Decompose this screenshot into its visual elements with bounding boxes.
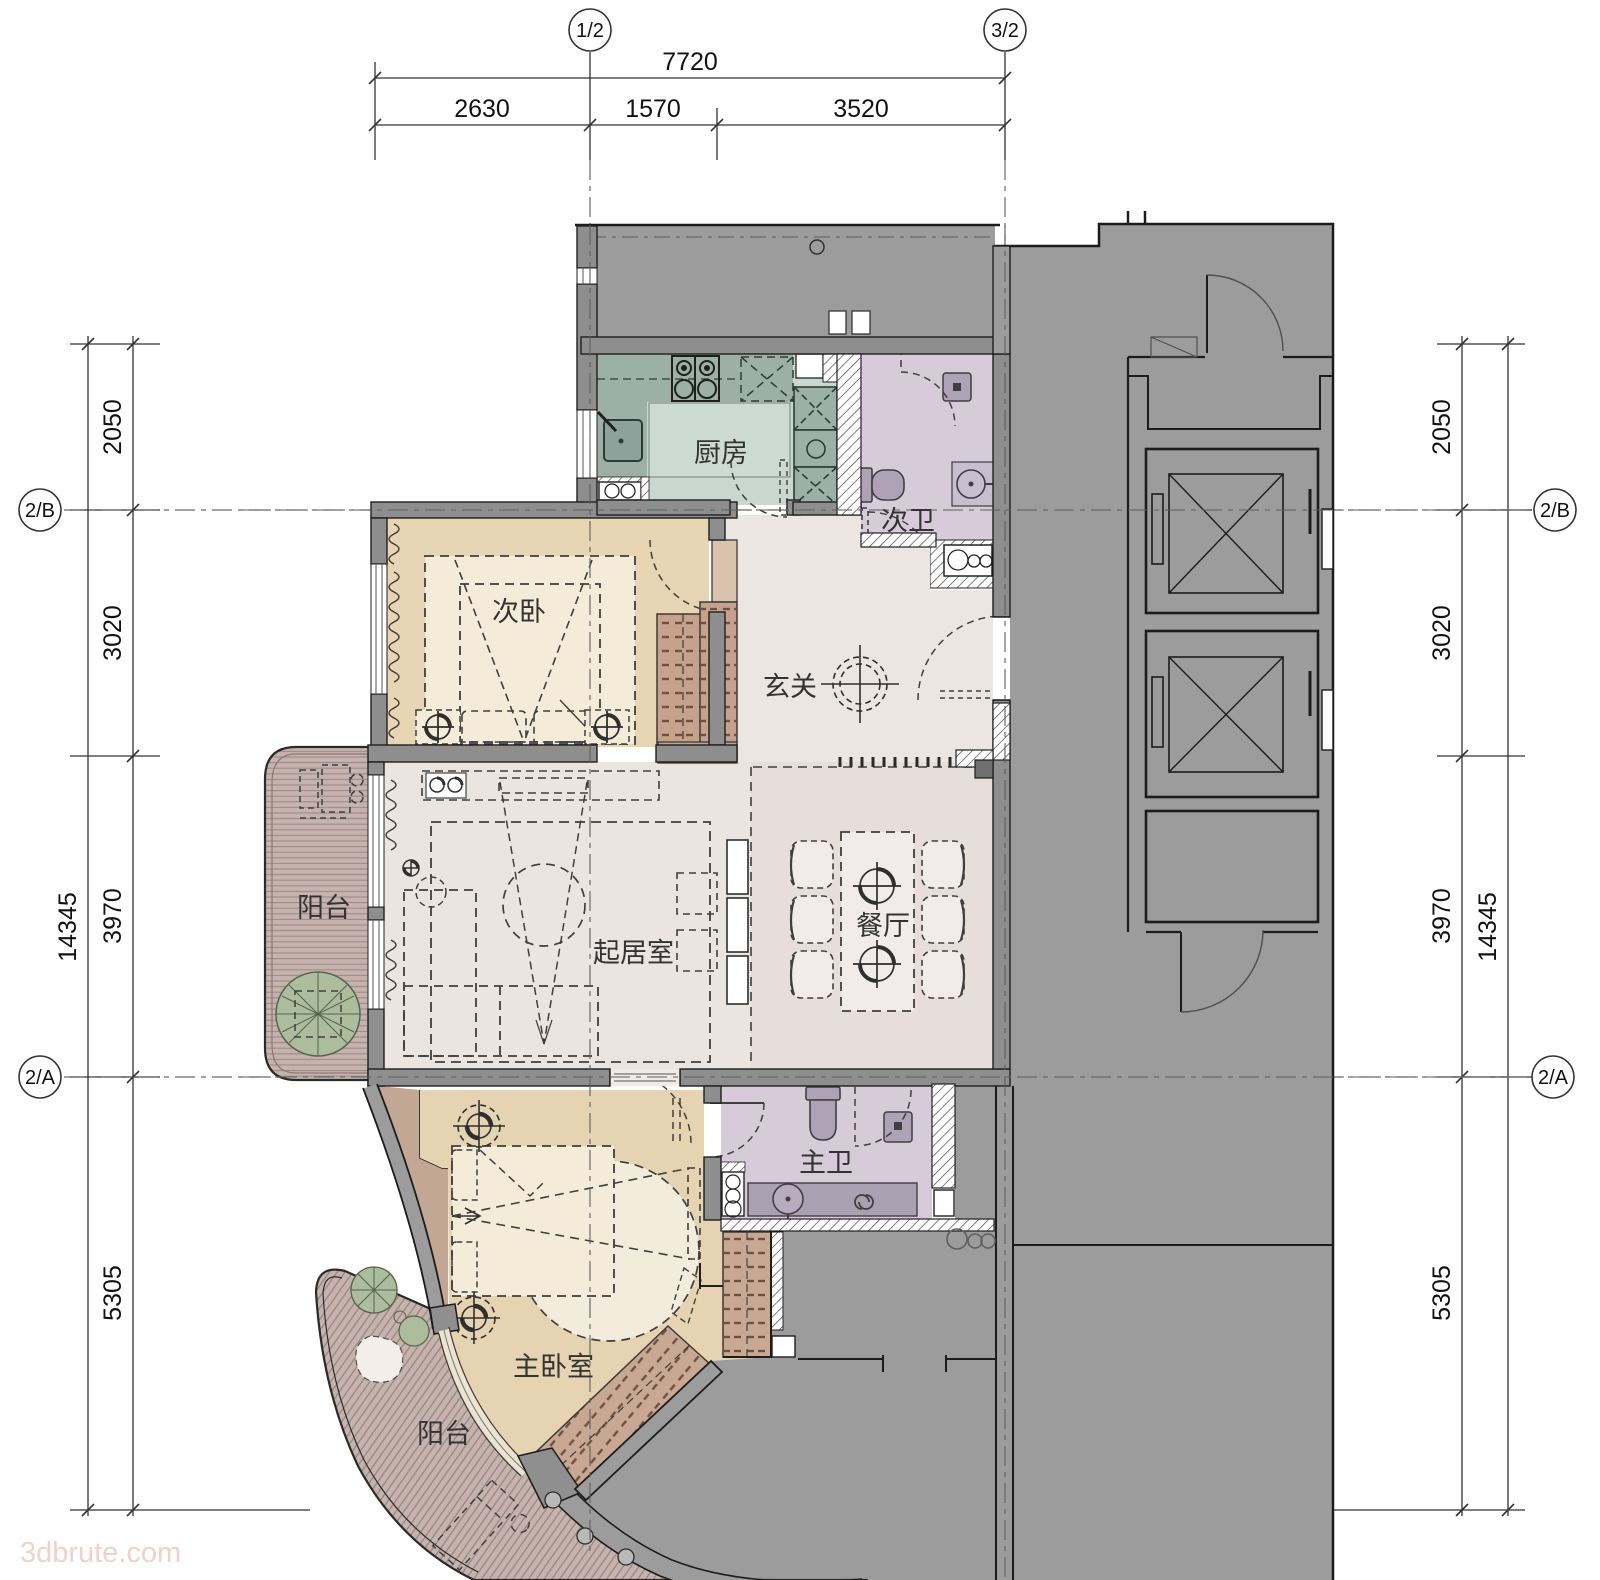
- svg-text:主卫: 主卫: [799, 1148, 853, 1178]
- svg-text:3970: 3970: [1428, 888, 1456, 944]
- svg-text:2050: 2050: [99, 399, 127, 455]
- svg-text:起居室: 起居室: [593, 938, 674, 968]
- svg-text:2630: 2630: [454, 95, 510, 123]
- svg-text:厨房: 厨房: [694, 438, 748, 468]
- svg-text:3970: 3970: [99, 888, 127, 944]
- svg-text:阳台: 阳台: [297, 893, 351, 923]
- svg-text:1/2: 1/2: [576, 20, 604, 42]
- svg-text:2/B: 2/B: [1540, 500, 1570, 522]
- svg-text:3/2: 3/2: [991, 20, 1019, 42]
- svg-text:次卫: 次卫: [881, 506, 935, 536]
- svg-text:3520: 3520: [833, 95, 889, 123]
- svg-text:3020: 3020: [99, 605, 127, 661]
- svg-text:阳台: 阳台: [417, 1419, 471, 1449]
- svg-text:5305: 5305: [1428, 1265, 1456, 1321]
- svg-text:餐厅: 餐厅: [856, 911, 910, 941]
- svg-text:3020: 3020: [1428, 605, 1456, 661]
- svg-text:2/B: 2/B: [25, 500, 55, 522]
- svg-text:14345: 14345: [54, 892, 82, 962]
- svg-text:2/A: 2/A: [25, 1067, 56, 1089]
- svg-text:主卧室: 主卧室: [513, 1352, 594, 1382]
- svg-text:5305: 5305: [99, 1265, 127, 1321]
- svg-text:2050: 2050: [1428, 399, 1456, 455]
- svg-text:次卧: 次卧: [492, 597, 546, 627]
- svg-text:玄关: 玄关: [763, 672, 817, 702]
- svg-text:1570: 1570: [625, 95, 681, 123]
- svg-text:3dbrute.com: 3dbrute.com: [20, 1537, 181, 1569]
- svg-text:7720: 7720: [662, 48, 718, 76]
- svg-text:2/A: 2/A: [1538, 1067, 1569, 1089]
- svg-text:14345: 14345: [1474, 892, 1502, 962]
